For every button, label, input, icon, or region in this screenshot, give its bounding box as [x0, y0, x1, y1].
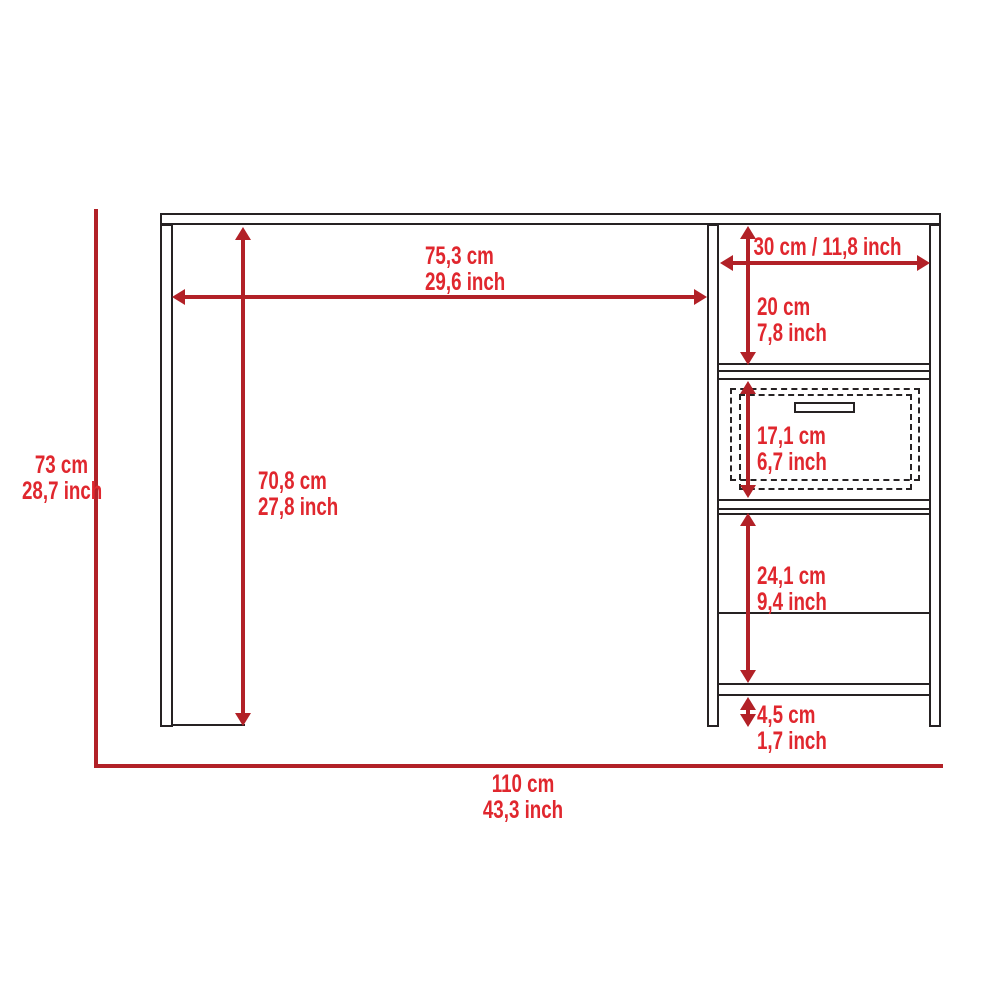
label-worktop-clearance-cm: 75,3 cm: [425, 243, 505, 269]
dim-arrow-drawer-height: [740, 381, 756, 498]
side-unit-bottom-shelf: [717, 683, 931, 696]
drawer-handle: [794, 402, 855, 413]
dim-arrow-leg-height: [740, 697, 756, 727]
label-upper-cubby: 20 cm 7,8 inch: [757, 294, 827, 346]
label-lower-cubby: 24,1 cm 9,4 inch: [757, 563, 827, 615]
dim-arrow-lower-cubby: [740, 513, 756, 683]
dimension-diagram: 75,3 cm 29,6 inch 70,8 cm 27,8 inch 73 c…: [0, 0, 1000, 1000]
label-lower-cubby-cm: 24,1 cm: [757, 563, 827, 589]
desk-top-panel: [160, 213, 941, 225]
label-leg-clearance: 70,8 cm 27,8 inch: [258, 468, 338, 520]
label-overall-width-in: 43,3 inch: [429, 797, 617, 823]
label-leg-height: 4,5 cm 1,7 inch: [757, 702, 827, 754]
label-overall-width-cm: 110 cm: [429, 771, 617, 797]
label-lower-cubby-in: 9,4 inch: [757, 589, 827, 615]
label-worktop-clearance: 75,3 cm 29,6 inch: [425, 243, 505, 295]
label-overall-height-in: 28,7 inch: [22, 478, 88, 504]
label-upper-cubby-cm: 20 cm: [757, 294, 827, 320]
label-worktop-clearance-in: 29,6 inch: [425, 269, 505, 295]
dim-line-overall-width: [97, 764, 943, 768]
label-overall-height: 73 cm 28,7 inch: [22, 452, 88, 504]
label-overall-width: 110 cm 43,3 inch: [429, 771, 617, 823]
label-drawer-cm: 17,1 cm: [757, 423, 827, 449]
label-leg-height-in: 1,7 inch: [757, 728, 827, 754]
label-upper-cubby-in: 7,8 inch: [757, 320, 827, 346]
label-leg-height-cm: 4,5 cm: [757, 702, 827, 728]
label-side-unit-width: 30 cm / 11,8 inch: [743, 234, 912, 260]
label-overall-height-cm: 73 cm: [22, 452, 88, 478]
label-drawer-in: 6,7 inch: [757, 449, 827, 475]
dim-arrow-leg-clearance: [235, 227, 251, 726]
label-leg-clearance-cm: 70,8 cm: [258, 468, 338, 494]
label-drawer: 17,1 cm 6,7 inch: [757, 423, 827, 475]
label-leg-clearance-in: 27,8 inch: [258, 494, 338, 520]
label-side-unit-width-text: 30 cm / 11,8 inch: [743, 234, 912, 260]
left-leg-bottom-edge: [171, 724, 245, 726]
